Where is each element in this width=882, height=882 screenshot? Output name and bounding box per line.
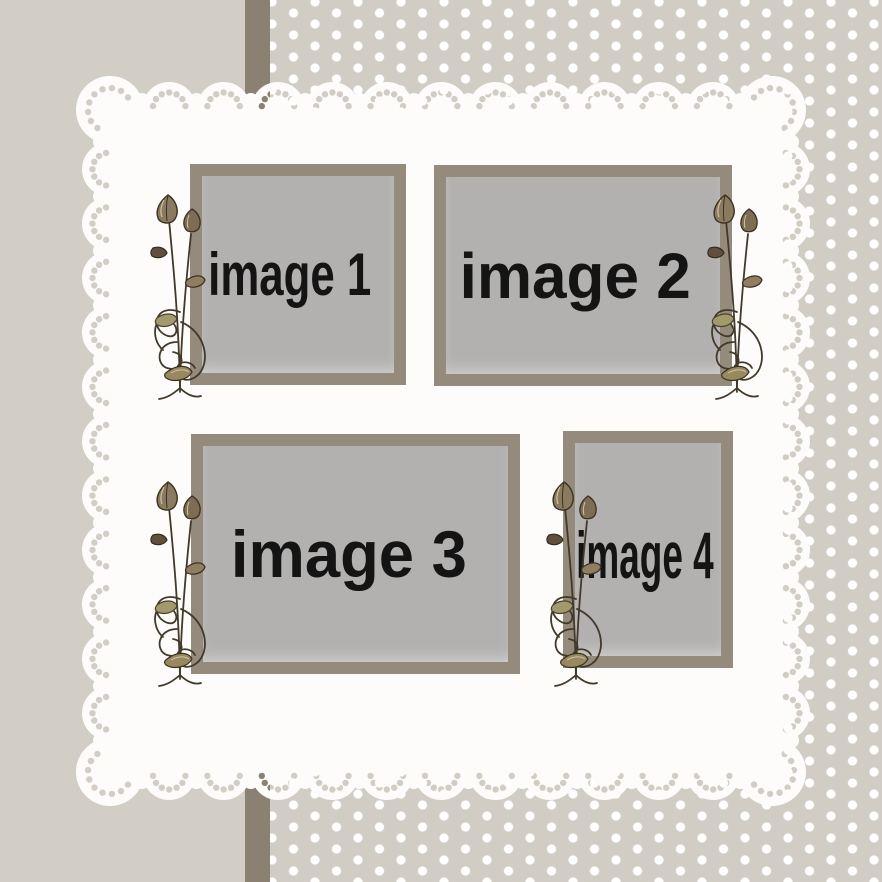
photo-slot-3-label: image 3 — [231, 521, 467, 587]
photo-slot-1-label: image 1 — [208, 245, 371, 305]
scrapbook-page: image 1 image 2 image 3 image 4 — [0, 0, 882, 882]
vine-flower-icon — [704, 192, 770, 402]
photo-slot-2-label: image 2 — [459, 244, 690, 308]
vine-flower-icon — [147, 192, 213, 402]
photo-slot-1[interactable]: image 1 — [190, 164, 406, 385]
vine-flower-icon — [543, 479, 609, 689]
photo-slot-3[interactable]: image 3 — [191, 434, 520, 674]
vine-flower-icon — [147, 479, 213, 689]
photo-slot-2[interactable]: image 2 — [434, 165, 732, 386]
